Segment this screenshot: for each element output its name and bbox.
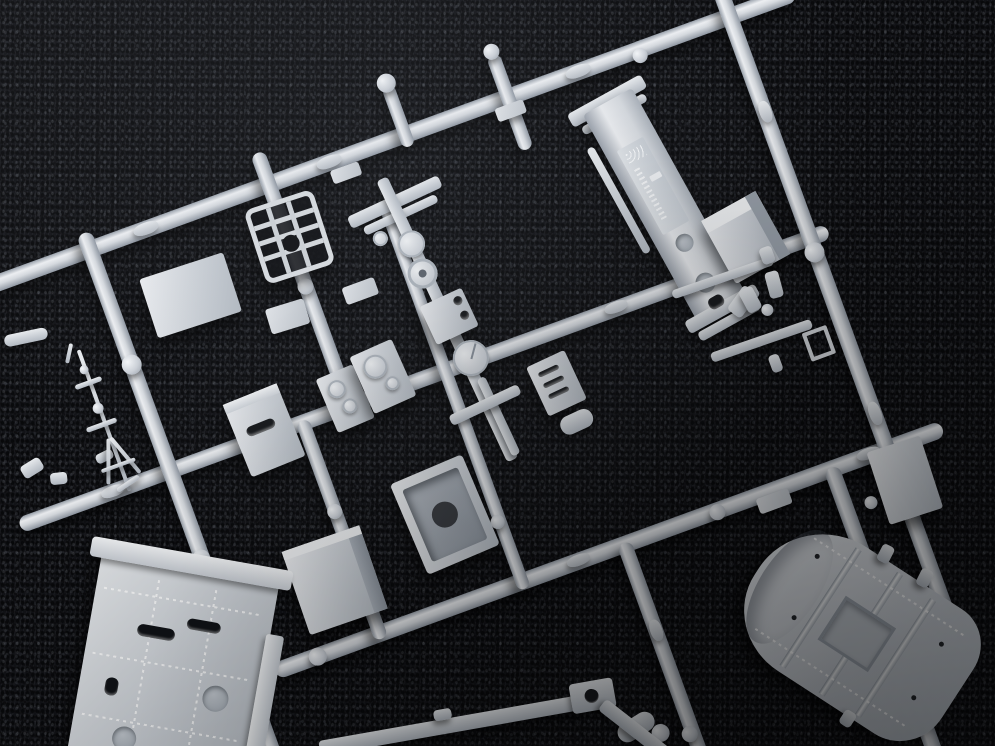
sprue-photo: Close-up photograph of a light grey inje…: [0, 0, 995, 746]
lighting-vignette: [0, 0, 995, 746]
